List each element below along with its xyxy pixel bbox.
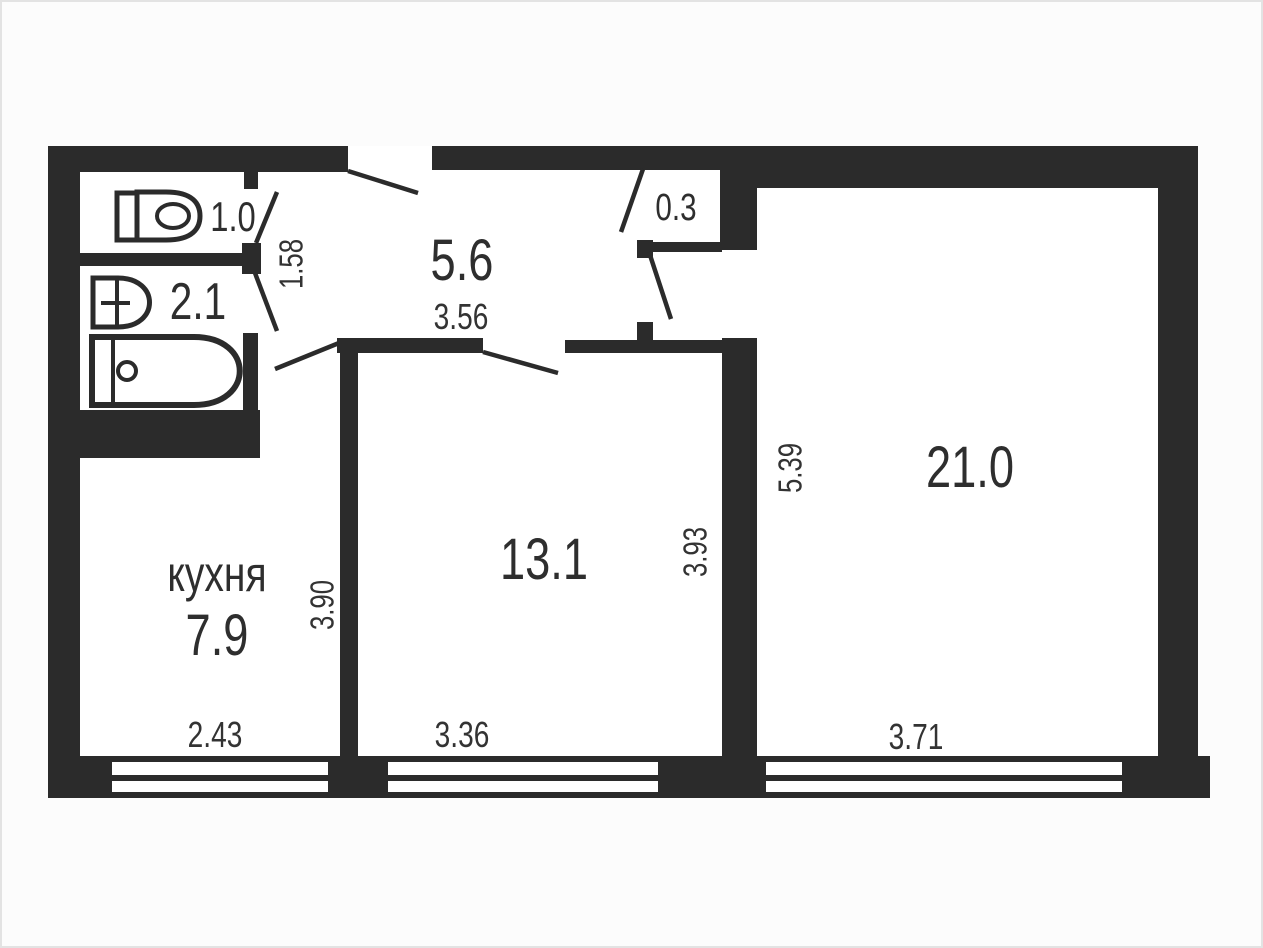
toilet-door-jamb-top — [244, 172, 258, 189]
storage-wall-bottom — [645, 242, 722, 252]
storage-area-label: 0.3 — [655, 189, 696, 227]
facade-pier-bedroom-living — [658, 756, 766, 798]
toilet-area-label: 1.0 — [210, 196, 256, 238]
wall-bedroom-living — [722, 338, 757, 760]
wall-top-right — [720, 146, 1198, 188]
living-depth-dim: 5.39 — [774, 443, 807, 493]
toilet-bathroom-divider-wall — [80, 253, 245, 266]
bedroom-width-dim: 3.36 — [435, 717, 490, 753]
facade-pier-kitchen-bedroom — [328, 756, 388, 798]
wall-kitchen-bedroom — [340, 353, 358, 760]
facade-pier-right — [1122, 756, 1210, 798]
kitchen-depth-dim: 3.90 — [306, 580, 339, 630]
kitchen-width-dim: 2.43 — [188, 717, 243, 753]
hallway-width-dim: 3.56 — [434, 299, 489, 335]
bedroom-depth-dim: 3.93 — [679, 527, 712, 577]
window-outer-line — [48, 792, 1210, 798]
hallway-wall-bottom-right — [565, 340, 722, 353]
kitchen-area-label: 7.9 — [186, 607, 249, 665]
bathroom-wall-bottom — [80, 410, 260, 458]
wall-right — [1158, 146, 1198, 760]
wall-top-middle — [432, 146, 720, 170]
bathroom-wall-right — [243, 333, 258, 410]
living-area-label: 21.0 — [926, 439, 1014, 497]
bathroom-area-label: 2.1 — [170, 276, 226, 328]
wall-left — [48, 146, 80, 760]
wall-top-left — [48, 146, 348, 172]
window-sill-line — [48, 756, 1210, 762]
living-width-dim: 3.71 — [889, 719, 944, 755]
hallway-wall-bottom-left — [337, 338, 483, 353]
living-door-jamb — [637, 322, 653, 340]
window-mid-line — [48, 775, 1210, 781]
facade-pier-left — [48, 756, 112, 798]
bedroom-area-label: 13.1 — [500, 531, 588, 589]
floor-plan: 1.0 2.1 0.3 5.6 кухня 7.9 13.1 21.0 3.56… — [0, 0, 1263, 948]
storage-door-jamb — [637, 240, 653, 258]
storage-wall-right — [720, 168, 757, 250]
floor-background — [48, 146, 1198, 798]
hallway-depth-dim: 1.58 — [275, 239, 308, 289]
kitchen-name-label: кухня — [167, 549, 266, 599]
floor-plan-page: 1.0 2.1 0.3 5.6 кухня 7.9 13.1 21.0 3.56… — [0, 0, 1263, 948]
hallway-area-label: 5.6 — [431, 232, 494, 290]
